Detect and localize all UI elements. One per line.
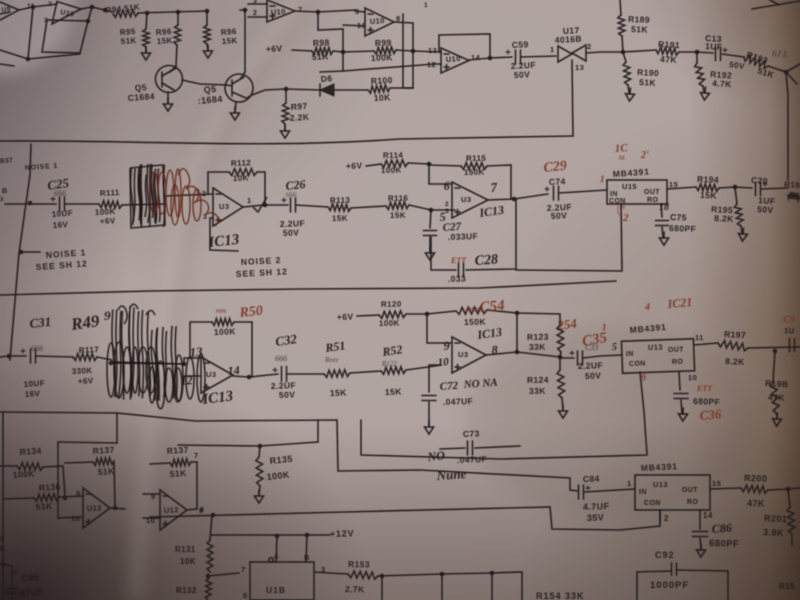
svg-text:50V: 50V [279, 389, 296, 400]
svg-text:IC13: IC13 [207, 232, 241, 251]
svg-text:R112: R112 [231, 158, 252, 168]
svg-text:7: 7 [194, 453, 198, 460]
svg-text:7: 7 [298, 5, 303, 14]
svg-text:5: 5 [612, 342, 617, 353]
svg-text:15K: 15K [385, 386, 403, 397]
svg-text:1: 1 [247, 196, 252, 205]
svg-text:2: 2 [253, 10, 257, 17]
svg-text:C72: C72 [439, 380, 459, 393]
svg-text:U12: U12 [87, 503, 102, 513]
svg-text:2': 2' [640, 150, 649, 161]
svg-text:R137: R137 [92, 444, 115, 456]
svg-text:U3: U3 [458, 350, 468, 359]
svg-text:U13: U13 [653, 480, 668, 489]
svg-text:100K: 100K [371, 52, 394, 63]
svg-text:R137: R137 [166, 444, 189, 456]
svg-text:U10: U10 [271, 7, 287, 17]
svg-text:10UF: 10UF [52, 209, 74, 219]
svg-text:C20: C20 [751, 175, 768, 186]
svg-text:6J L: 6J L [772, 48, 789, 59]
svg-text:IN: IN [639, 489, 647, 496]
svg-text:C33: C33 [585, 343, 598, 352]
svg-text:100K: 100K [381, 166, 402, 175]
svg-text:C74: C74 [549, 176, 566, 187]
svg-text:12: 12 [427, 60, 436, 69]
svg-text:666: 666 [31, 344, 43, 353]
svg-text:R124: R124 [527, 375, 549, 385]
svg-text:C59: C59 [512, 39, 529, 50]
svg-text:R15: R15 [779, 582, 795, 591]
svg-text:680PF: 680PF [693, 396, 720, 407]
svg-text:B37: B37 [0, 157, 13, 165]
svg-text:2: 2 [587, 42, 592, 51]
svg-text:R201: R201 [764, 513, 788, 524]
svg-text:10K: 10K [180, 557, 196, 566]
svg-text:10: 10 [437, 356, 450, 369]
svg-text:R100: R100 [371, 75, 393, 86]
svg-text:9: 9 [104, 308, 111, 323]
svg-text:10UF: 10UF [24, 379, 46, 389]
svg-text:NOISE 2: NOISE 2 [241, 255, 282, 267]
svg-text:4.7K: 4.7K [712, 78, 733, 89]
svg-text:Nune: Nune [435, 466, 467, 483]
svg-text:680PF: 680PF [669, 223, 696, 234]
svg-text:C92: C92 [655, 550, 675, 560]
svg-text:51K: 51K [121, 36, 137, 46]
svg-text:47K: 47K [768, 392, 786, 403]
svg-text:R154 33K: R154 33K [536, 591, 585, 600]
svg-text:3.9K: 3.9K [763, 527, 784, 538]
svg-text:R122: R122 [381, 360, 397, 368]
svg-text:47K: 47K [747, 498, 765, 509]
svg-text:MB4391: MB4391 [641, 461, 678, 473]
svg-text:R115: R115 [466, 154, 487, 163]
svg-text:50V: 50V [551, 210, 568, 221]
svg-text:680PF: 680PF [709, 538, 739, 550]
svg-text:OUT: OUT [668, 346, 685, 354]
svg-text:U15: U15 [622, 182, 637, 191]
svg-text:R131: R131 [175, 545, 196, 554]
svg-text:33K: 33K [529, 386, 546, 396]
svg-text:100K: 100K [12, 468, 35, 480]
svg-text:9: 9 [0, 536, 4, 543]
svg-text:51K: 51K [312, 51, 330, 62]
svg-text:16V: 16V [25, 389, 41, 399]
svg-text:R194: R194 [697, 174, 719, 185]
svg-text:C29: C29 [543, 159, 568, 176]
svg-text:15K: 15K [332, 214, 348, 223]
svg-text:.047UF: .047UF [443, 396, 474, 407]
svg-text:2: 2 [622, 212, 629, 224]
svg-text:18: 18 [659, 202, 669, 213]
svg-text:R116: R116 [388, 194, 409, 203]
svg-text:C9: C9 [783, 314, 795, 326]
svg-text:+6V: +6V [100, 216, 116, 226]
svg-text:2: 2 [202, 191, 206, 198]
svg-text:U12: U12 [164, 505, 179, 515]
svg-text:51K: 51K [639, 77, 657, 88]
svg-text:R51: R51 [323, 338, 346, 355]
svg-text:RO: RO [672, 359, 684, 366]
svg-text:C73: C73 [463, 428, 480, 439]
svg-text:R136: R136 [38, 481, 61, 493]
svg-text:14: 14 [471, 53, 481, 62]
svg-text:6: 6 [443, 179, 450, 193]
svg-text:R98: R98 [313, 37, 330, 48]
svg-text:47K: 47K [660, 54, 678, 65]
svg-text:50V: 50V [514, 69, 531, 80]
svg-text:C86: C86 [711, 521, 732, 536]
svg-text:15K: 15K [700, 190, 718, 201]
svg-text:R120: R120 [381, 300, 402, 309]
svg-text:OUT: OUT [682, 487, 698, 494]
svg-text:51K: 51K [97, 466, 115, 477]
svg-text:10K: 10K [233, 173, 249, 183]
svg-text:1UF: 1UF [705, 41, 723, 52]
svg-text:8: 8 [200, 507, 204, 514]
svg-text:K: K [0, 546, 5, 553]
svg-text:U9: U9 [1, 6, 11, 14]
svg-text:U3: U3 [461, 195, 471, 204]
svg-text:51K: 51K [631, 24, 649, 35]
svg-text:Q5: Q5 [203, 84, 217, 95]
svg-text:9: 9 [443, 339, 450, 353]
svg-text:C75: C75 [670, 212, 687, 223]
svg-text:.047UF: .047UF [457, 454, 488, 465]
svg-text:2: 2 [664, 514, 669, 523]
svg-text:100K: 100K [214, 326, 237, 337]
svg-text:NO NA: NO NA [462, 377, 498, 391]
svg-text:ETT: ETT [696, 384, 713, 393]
svg-text:U3: U3 [206, 370, 216, 379]
svg-text:1U: 1U [784, 326, 795, 336]
svg-text:C36: C36 [699, 406, 722, 423]
svg-text:3: 3 [253, 0, 257, 5]
svg-text:254: 254 [555, 315, 578, 333]
svg-text:33K: 33K [529, 342, 546, 352]
svg-text:666: 666 [286, 191, 297, 199]
svg-text:Reee: Reee [324, 356, 339, 364]
svg-text:50V: 50V [283, 227, 300, 238]
svg-text:C1684: C1684 [127, 91, 155, 103]
svg-text:150K: 150K [464, 317, 487, 327]
svg-text:+6V: +6V [266, 43, 283, 54]
svg-text:15K: 15K [390, 211, 406, 220]
svg-text:+12V: +12V [330, 528, 355, 539]
svg-text:.033: .033 [448, 273, 466, 284]
svg-text:R52: R52 [380, 342, 403, 359]
svg-text:D6: D6 [320, 73, 332, 84]
svg-text:U3: U3 [219, 202, 229, 211]
svg-text:15K: 15K [157, 36, 173, 46]
svg-text:IC21: IC21 [666, 295, 693, 311]
svg-text:C54: C54 [479, 298, 506, 316]
svg-text:≈≈: ≈≈ [216, 306, 226, 316]
svg-text:IN: IN [610, 191, 618, 198]
svg-text:51K: 51K [35, 501, 53, 512]
svg-text:1: 1 [550, 45, 555, 54]
svg-text:R19B: R19B [765, 378, 789, 389]
svg-text:RO: RO [687, 499, 698, 506]
svg-text:2: 2 [445, 201, 449, 208]
svg-text:15: 15 [712, 479, 721, 488]
svg-text:R200: R200 [744, 473, 767, 484]
svg-text:R114: R114 [383, 151, 404, 160]
svg-text:IN: IN [626, 351, 634, 358]
svg-text:RO: RO [647, 197, 658, 204]
svg-text:50V: 50V [757, 204, 774, 215]
svg-text:U10: U10 [370, 16, 386, 26]
svg-text:R123: R123 [527, 332, 549, 342]
svg-text:13: 13 [575, 63, 584, 72]
svg-text:R117: R117 [79, 345, 100, 355]
svg-text:2.7K: 2.7K [345, 584, 365, 594]
svg-text:47UF: 47UF [20, 587, 44, 598]
svg-text:R50: R50 [238, 304, 264, 321]
svg-text:6: 6 [243, 591, 248, 600]
svg-text:1000PF: 1000PF [650, 580, 689, 591]
svg-text:R153: R153 [348, 559, 370, 569]
svg-text:U1B: U1B [266, 585, 286, 595]
svg-text:R19: R19 [784, 180, 800, 190]
svg-text:R134: R134 [19, 445, 42, 457]
svg-text:4016B: 4016B [555, 34, 583, 45]
svg-text:35V: 35V [587, 512, 605, 523]
svg-text:ETT: ETT [450, 256, 467, 265]
svg-text:+6V: +6V [337, 311, 354, 322]
svg-text:C28: C28 [474, 252, 498, 269]
svg-text:2.2UF: 2.2UF [578, 360, 603, 371]
svg-text:14: 14 [703, 511, 713, 520]
svg-text:1: 1 [627, 479, 632, 488]
svg-text:B: B [2, 188, 7, 195]
svg-text:1: 1 [602, 322, 607, 332]
svg-text:U10: U10 [446, 54, 462, 64]
svg-text:9: 9 [76, 489, 81, 498]
svg-text:R113: R113 [330, 196, 351, 205]
svg-text:.033UF: .033UF [448, 231, 479, 242]
svg-text:50V: 50V [585, 370, 602, 381]
svg-text:15K: 15K [330, 387, 348, 398]
svg-text:51K: 51K [169, 468, 187, 479]
svg-text:3: 3 [0, 197, 4, 203]
svg-text:R197: R197 [724, 329, 746, 340]
svg-text:≈: ≈ [619, 153, 625, 164]
svg-text:R97: R97 [290, 101, 307, 112]
svg-text:100K: 100K [379, 319, 400, 328]
svg-text:C31: C31 [29, 314, 52, 331]
svg-text:15K: 15K [222, 36, 238, 46]
svg-text:1: 1 [600, 174, 605, 184]
svg-text:R191: R191 [658, 39, 680, 50]
svg-text:C32: C32 [274, 331, 298, 349]
svg-text:CON: CON [629, 360, 646, 368]
svg-text:+6V: +6V [78, 376, 94, 386]
svg-text:U13: U13 [648, 342, 663, 352]
svg-text:R132: R132 [176, 586, 197, 595]
svg-text:10: 10 [71, 514, 80, 523]
svg-text:3: 3 [445, 208, 449, 215]
svg-text:NO: NO [426, 448, 446, 464]
svg-text:OUT: OUT [644, 189, 660, 196]
svg-text:8.2K: 8.2K [725, 356, 746, 367]
svg-text:R111: R111 [100, 188, 120, 198]
svg-text:+6V: +6V [346, 160, 363, 171]
svg-text:2.2K: 2.2K [289, 112, 310, 123]
svg-text:R99: R99 [375, 37, 392, 48]
svg-text:2: 2 [48, 1, 52, 8]
svg-text:13: 13 [428, 46, 437, 55]
svg-text:C85: C85 [22, 572, 40, 583]
svg-text:1: 1 [424, 2, 428, 9]
svg-text:330K: 330K [72, 366, 93, 376]
svg-text:10: 10 [688, 373, 697, 382]
svg-text:666: 666 [275, 354, 287, 363]
svg-text:10K: 10K [374, 92, 392, 103]
svg-text:4.7UF: 4.7UF [583, 501, 610, 512]
svg-text:16V: 16V [53, 220, 69, 230]
svg-text:8.2K: 8.2K [714, 213, 735, 224]
svg-text:11: 11 [695, 333, 704, 342]
svg-text:C84: C84 [583, 473, 600, 484]
svg-text:150K: 150K [464, 168, 485, 177]
svg-text:4: 4 [644, 302, 650, 313]
svg-text:CON: CON [644, 500, 661, 507]
svg-text:7: 7 [241, 565, 246, 574]
